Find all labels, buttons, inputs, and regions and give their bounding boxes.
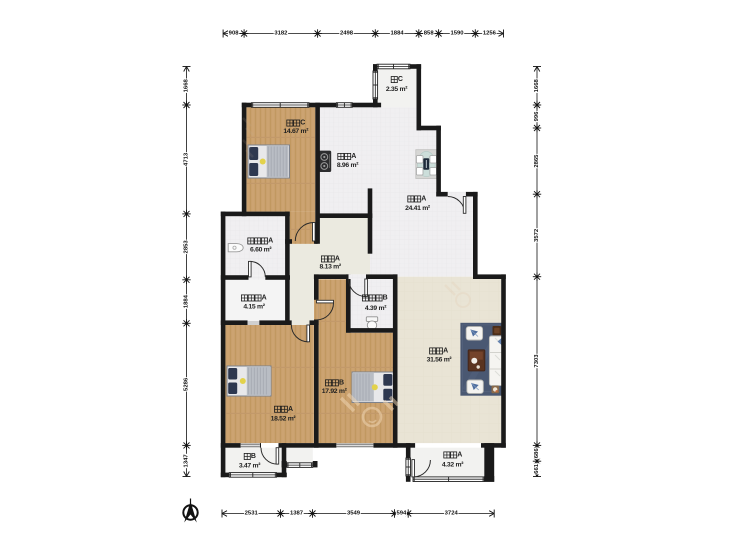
svg-text:17.92 m²: 17.92 m² bbox=[322, 388, 348, 395]
svg-text:B: B bbox=[251, 453, 256, 460]
svg-text:1590: 1590 bbox=[450, 31, 464, 37]
svg-text:A: A bbox=[268, 238, 273, 245]
svg-text:2853: 2853 bbox=[184, 240, 190, 254]
svg-text:1256: 1256 bbox=[483, 31, 497, 37]
svg-text:14.67 m²: 14.67 m² bbox=[283, 128, 309, 135]
svg-text:6.60 m²: 6.60 m² bbox=[250, 247, 272, 254]
svg-text:4.39 m²: 4.39 m² bbox=[365, 305, 387, 312]
svg-text:2531: 2531 bbox=[245, 511, 259, 517]
svg-text:3.47 m²: 3.47 m² bbox=[239, 463, 261, 470]
svg-text:3549: 3549 bbox=[347, 511, 361, 517]
svg-text:A: A bbox=[351, 153, 356, 160]
svg-text:1668: 1668 bbox=[534, 79, 540, 93]
svg-text:B: B bbox=[339, 379, 344, 386]
svg-text:8.13 m²: 8.13 m² bbox=[320, 263, 342, 270]
svg-text:4.32 m²: 4.32 m² bbox=[442, 462, 464, 469]
svg-text:C: C bbox=[300, 120, 305, 127]
svg-text:2865: 2865 bbox=[534, 154, 540, 168]
svg-text:A: A bbox=[421, 196, 426, 203]
svg-text:3724: 3724 bbox=[445, 511, 459, 517]
svg-text:686: 686 bbox=[534, 448, 540, 459]
svg-text:31.56 m²: 31.56 m² bbox=[427, 357, 453, 364]
svg-text:3572: 3572 bbox=[534, 228, 540, 242]
svg-text:24.41 m²: 24.41 m² bbox=[405, 205, 431, 212]
svg-text:A: A bbox=[457, 452, 462, 459]
svg-text:5286: 5286 bbox=[184, 377, 190, 391]
svg-text:996: 996 bbox=[534, 111, 540, 122]
svg-text:858: 858 bbox=[424, 31, 435, 37]
svg-text:A: A bbox=[288, 406, 293, 413]
svg-text:2498: 2498 bbox=[340, 31, 354, 37]
svg-text:1884: 1884 bbox=[184, 294, 190, 308]
svg-text:C: C bbox=[398, 76, 403, 83]
svg-text:1668: 1668 bbox=[184, 79, 190, 93]
svg-text:A: A bbox=[335, 256, 340, 263]
svg-text:8.96 m²: 8.96 m² bbox=[337, 162, 359, 169]
svg-text:3182: 3182 bbox=[274, 31, 288, 37]
svg-text:18.52 m²: 18.52 m² bbox=[271, 416, 297, 423]
svg-text:1387: 1387 bbox=[290, 511, 304, 517]
svg-text:1884: 1884 bbox=[391, 31, 405, 37]
svg-text:A: A bbox=[443, 348, 448, 355]
svg-text:A: A bbox=[262, 295, 267, 302]
svg-text:2.35 m²: 2.35 m² bbox=[386, 86, 408, 93]
svg-text:1347: 1347 bbox=[184, 454, 190, 468]
svg-text:7303: 7303 bbox=[534, 354, 540, 368]
svg-text:4.15 m²: 4.15 m² bbox=[243, 303, 265, 310]
svg-text:594: 594 bbox=[396, 511, 407, 517]
svg-text:661: 661 bbox=[534, 463, 540, 474]
svg-text:B: B bbox=[383, 295, 388, 302]
svg-text:4713: 4713 bbox=[184, 152, 190, 166]
svg-text:908: 908 bbox=[229, 31, 240, 37]
